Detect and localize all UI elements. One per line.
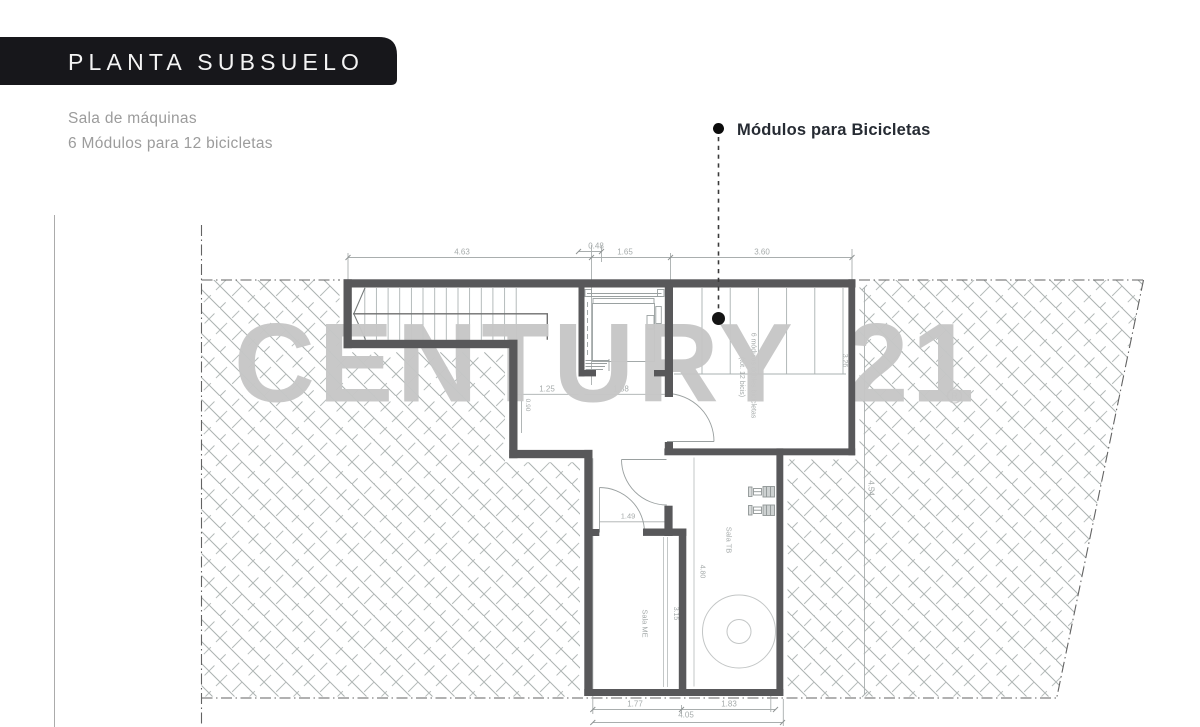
svg-text:4.54: 4.54 xyxy=(867,480,876,496)
svg-text:21: 21 xyxy=(846,301,978,426)
svg-text:PLANTA SUBSUELO: PLANTA SUBSUELO xyxy=(68,49,364,75)
svg-text:R: R xyxy=(951,391,958,401)
svg-text:3.60: 3.60 xyxy=(754,248,770,257)
svg-text:3.15: 3.15 xyxy=(672,607,679,621)
svg-text:1.65: 1.65 xyxy=(617,248,633,257)
svg-text:Sala de máquinas: Sala de máquinas xyxy=(68,110,197,127)
svg-text:Sala ME: Sala ME xyxy=(641,609,650,637)
svg-text:1.49: 1.49 xyxy=(621,512,636,521)
svg-text:4.05: 4.05 xyxy=(678,711,694,720)
svg-text:6 Módulos para 12 bicicletas: 6 Módulos para 12 bicicletas xyxy=(68,135,273,152)
svg-text:1.83: 1.83 xyxy=(721,700,737,709)
svg-text:Sala TB: Sala TB xyxy=(725,527,734,554)
svg-text:Módulos para Bicicletas: Módulos para Bicicletas xyxy=(737,121,931,139)
svg-text:4.63: 4.63 xyxy=(454,248,470,257)
svg-text:0.48: 0.48 xyxy=(588,242,604,251)
svg-text:1.77: 1.77 xyxy=(627,700,643,709)
svg-text:4.80: 4.80 xyxy=(699,565,706,579)
